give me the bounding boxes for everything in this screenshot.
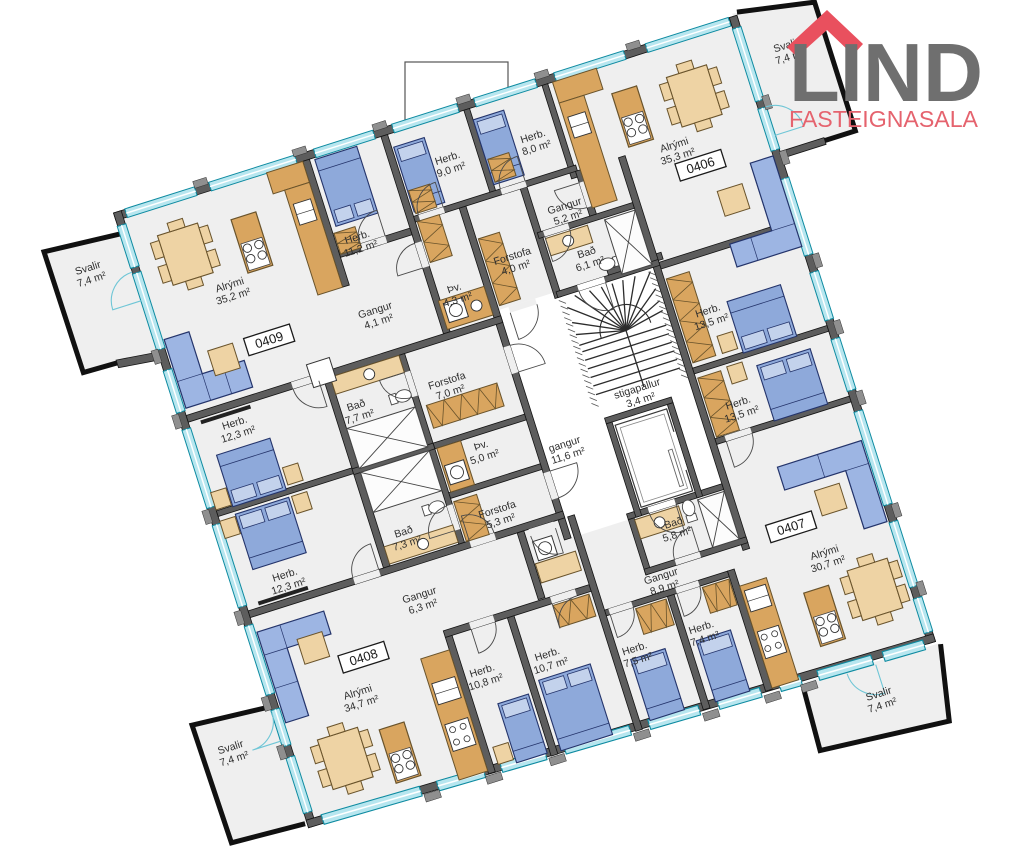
svg-text:FASTEIGNASALA: FASTEIGNASALA — [789, 106, 979, 132]
